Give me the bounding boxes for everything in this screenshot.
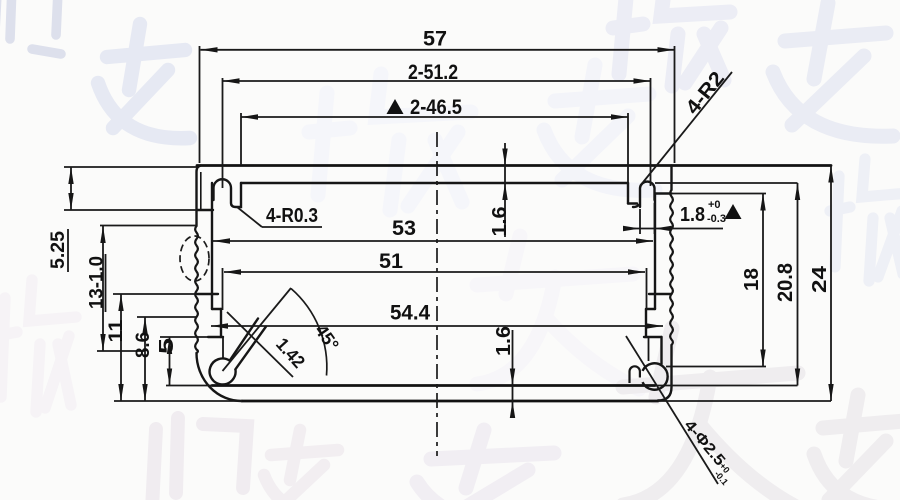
svg-text:13-1.0: 13-1.0 [87,256,108,309]
svg-text:24: 24 [809,265,831,293]
svg-text:2-46.5: 2-46.5 [410,96,462,119]
svg-text:1.8: 1.8 [680,204,705,226]
svg-text:1.6: 1.6 [493,326,515,356]
svg-text:57: 57 [423,28,447,51]
svg-text:20.8: 20.8 [774,263,797,302]
svg-text:1.42: 1.42 [272,334,309,372]
svg-text:8.6: 8.6 [133,332,154,358]
svg-text:11: 11 [106,319,127,342]
svg-text:5: 5 [156,338,178,354]
svg-text:-0.3: -0.3 [707,213,726,225]
svg-text:1.6: 1.6 [489,207,511,237]
svg-text:2-51.2: 2-51.2 [408,61,458,84]
svg-text:4-R0.3: 4-R0.3 [266,205,318,227]
svg-text:5.25: 5.25 [48,231,69,269]
svg-text:54.4: 54.4 [390,302,430,325]
svg-text:+0: +0 [708,199,721,211]
svg-text:51: 51 [379,250,403,273]
svg-text:18: 18 [741,268,763,291]
svg-text:53: 53 [392,217,416,240]
